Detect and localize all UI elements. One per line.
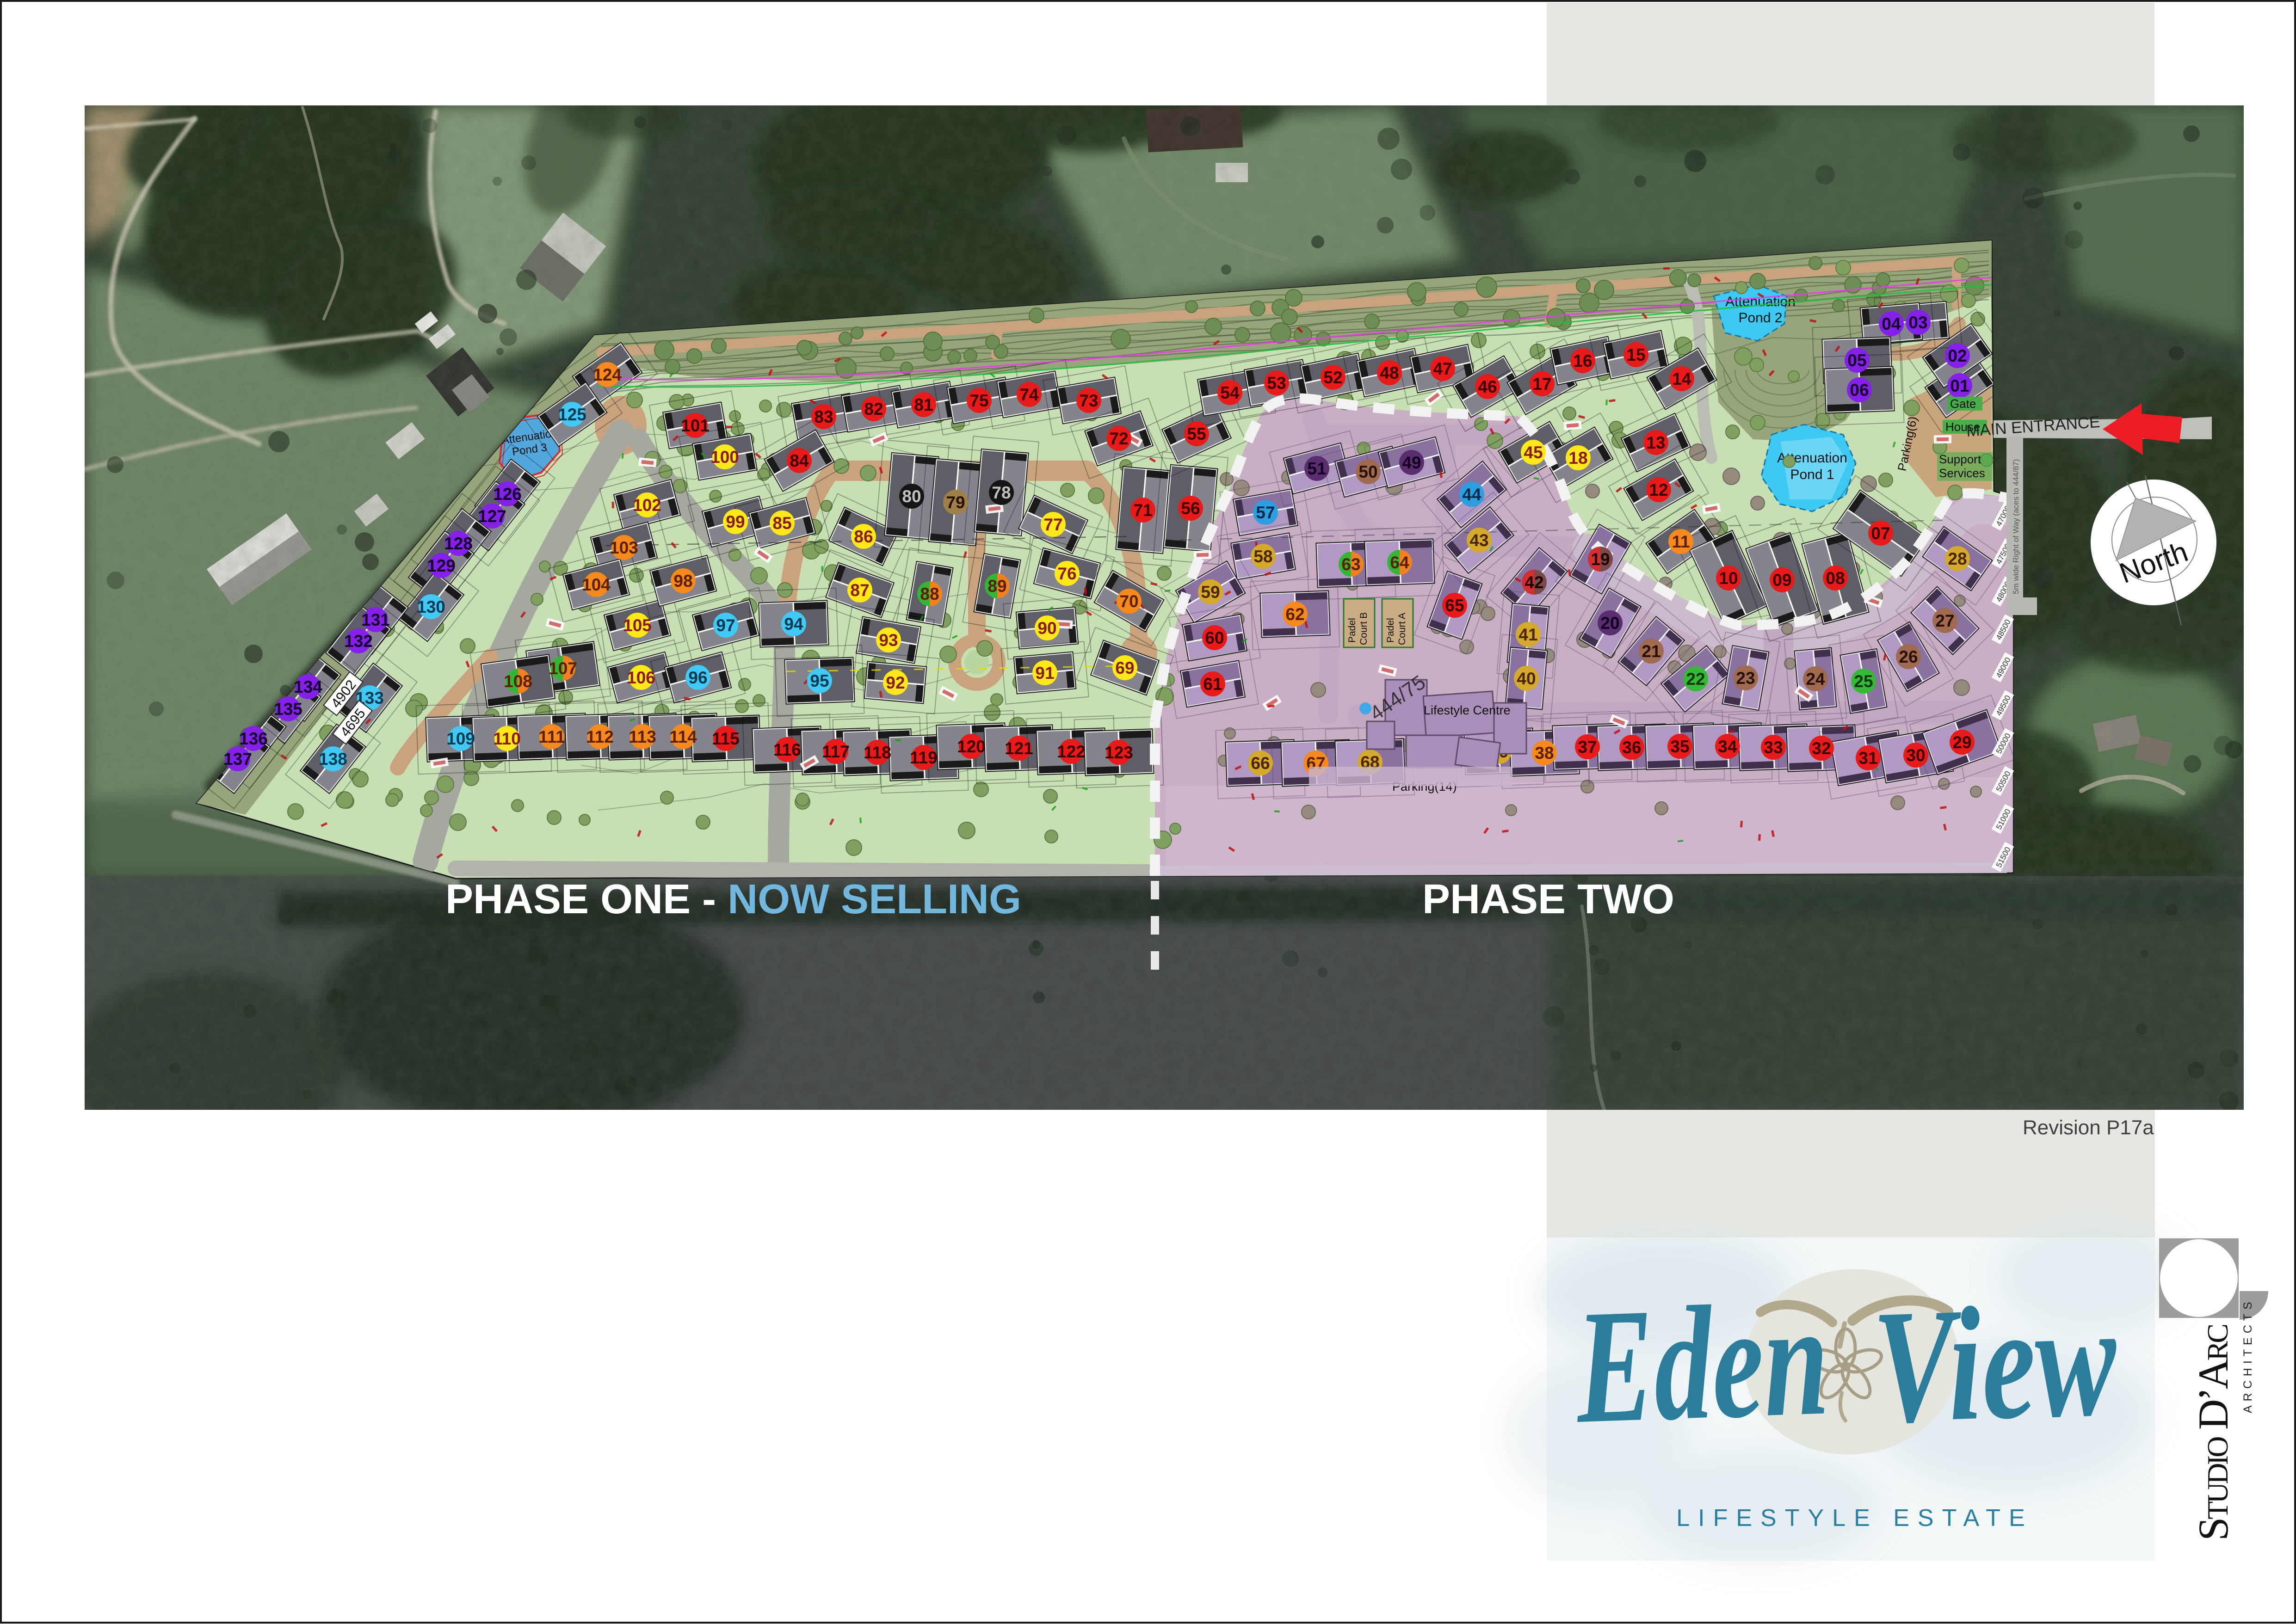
svg-text:11: 11 [1672, 532, 1690, 551]
svg-text:117: 117 [822, 742, 850, 761]
svg-text:61: 61 [1203, 675, 1222, 694]
svg-text:03: 03 [1908, 313, 1927, 332]
svg-text:84: 84 [790, 451, 809, 470]
svg-text:28: 28 [1948, 549, 1967, 568]
svg-text:77: 77 [1043, 515, 1062, 534]
svg-text:113: 113 [629, 727, 656, 746]
svg-text:69: 69 [1115, 658, 1134, 677]
svg-text:26: 26 [1899, 647, 1918, 666]
svg-text:75: 75 [969, 391, 988, 410]
svg-text:63: 63 [1341, 555, 1360, 574]
svg-text:LIFESTYLE ESTATE: LIFESTYLE ESTATE [1676, 1505, 2033, 1532]
svg-text:107: 107 [549, 659, 577, 678]
svg-text:130: 130 [417, 597, 445, 616]
svg-text:135: 135 [274, 700, 302, 719]
svg-text:47: 47 [1433, 359, 1452, 378]
svg-text:72: 72 [1109, 429, 1128, 448]
svg-text:24: 24 [1806, 670, 1825, 689]
svg-text:29: 29 [1952, 733, 1971, 752]
svg-text:73: 73 [1079, 391, 1098, 410]
svg-text:34: 34 [1718, 737, 1737, 756]
svg-text:99: 99 [726, 512, 745, 531]
svg-text:106: 106 [627, 668, 655, 687]
svg-text:48: 48 [1380, 363, 1399, 382]
svg-text:92: 92 [886, 673, 905, 692]
svg-text:49: 49 [1402, 453, 1421, 472]
svg-text:108: 108 [504, 672, 532, 691]
svg-text:90: 90 [1037, 619, 1056, 638]
svg-text:50: 50 [1358, 462, 1377, 481]
svg-text:80: 80 [902, 487, 921, 506]
svg-text:131: 131 [361, 610, 390, 629]
svg-text:46: 46 [1478, 377, 1497, 396]
svg-text:76: 76 [1057, 564, 1076, 583]
svg-text:114: 114 [669, 727, 697, 746]
svg-text:70: 70 [1119, 592, 1138, 611]
svg-text:62: 62 [1285, 605, 1304, 624]
svg-text:89: 89 [988, 577, 1006, 596]
svg-text:101: 101 [681, 416, 710, 435]
svg-text:12: 12 [1649, 480, 1668, 499]
svg-text:93: 93 [879, 631, 898, 650]
svg-text:134: 134 [294, 677, 322, 696]
svg-text:64: 64 [1390, 553, 1409, 572]
svg-text:91: 91 [1035, 664, 1054, 683]
svg-text:07: 07 [1871, 524, 1890, 543]
svg-text:Padel: Padel [1385, 618, 1396, 643]
svg-text:View: View [1870, 1269, 2120, 1458]
svg-text:18: 18 [1568, 449, 1587, 468]
svg-text:138: 138 [319, 750, 347, 769]
svg-text:Services: Services [1939, 466, 1985, 480]
svg-text:116: 116 [773, 740, 801, 759]
svg-text:43: 43 [1469, 531, 1488, 550]
svg-text:55: 55 [1187, 424, 1206, 443]
svg-text:105: 105 [623, 616, 652, 635]
svg-text:74: 74 [1019, 385, 1039, 404]
svg-text:110: 110 [493, 729, 521, 748]
svg-text:118: 118 [864, 743, 891, 762]
svg-text:121: 121 [1005, 739, 1033, 758]
svg-text:13: 13 [1646, 433, 1665, 452]
svg-text:100: 100 [710, 448, 739, 467]
svg-text:22: 22 [1686, 670, 1705, 689]
svg-text:PHASE ONE - NOW SELLING: PHASE ONE - NOW SELLING [445, 876, 1021, 923]
svg-text:81: 81 [914, 395, 933, 414]
svg-text:23: 23 [1736, 669, 1755, 688]
svg-text:Pond 1: Pond 1 [1790, 467, 1834, 482]
svg-text:Court B: Court B [1358, 612, 1369, 645]
svg-text:123: 123 [1105, 743, 1133, 762]
svg-text:129: 129 [427, 556, 456, 575]
svg-text:30: 30 [1906, 746, 1925, 765]
svg-text:40: 40 [1517, 669, 1536, 688]
svg-text:96: 96 [688, 668, 707, 687]
svg-text:111: 111 [538, 727, 565, 746]
svg-text:45: 45 [1524, 443, 1543, 462]
svg-text:53: 53 [1267, 374, 1286, 393]
svg-text:60: 60 [1205, 628, 1224, 647]
svg-text:85: 85 [772, 514, 791, 533]
svg-text:38: 38 [1535, 744, 1554, 763]
svg-text:44: 44 [1462, 485, 1481, 504]
svg-text:25: 25 [1854, 672, 1873, 691]
svg-text:57: 57 [1256, 503, 1275, 522]
svg-text:ARCHITECTS: ARCHITECTS [2241, 1298, 2254, 1413]
svg-text:20: 20 [1600, 614, 1619, 633]
svg-text:66: 66 [1251, 754, 1270, 773]
svg-text:136: 136 [239, 729, 268, 748]
svg-text:125: 125 [558, 405, 586, 424]
svg-text:126: 126 [493, 485, 522, 504]
svg-text:17: 17 [1532, 375, 1551, 394]
svg-text:51: 51 [1307, 459, 1326, 478]
svg-text:Court A: Court A [1397, 613, 1407, 645]
svg-text:Pond 2: Pond 2 [1738, 310, 1782, 326]
svg-text:71: 71 [1133, 501, 1152, 520]
svg-text:87: 87 [850, 581, 869, 600]
svg-text:10: 10 [1719, 569, 1738, 588]
svg-text:86: 86 [854, 527, 873, 546]
svg-text:37: 37 [1578, 738, 1597, 757]
svg-text:35: 35 [1670, 737, 1689, 756]
svg-text:Gate: Gate [1950, 397, 1976, 411]
svg-text:82: 82 [864, 400, 883, 418]
svg-text:132: 132 [344, 632, 373, 651]
svg-text:128: 128 [444, 534, 473, 553]
svg-text:112: 112 [586, 727, 614, 746]
svg-text:79: 79 [946, 493, 965, 512]
svg-text:33: 33 [1764, 738, 1783, 757]
svg-text:109: 109 [446, 729, 475, 748]
svg-text:09: 09 [1772, 571, 1791, 590]
svg-text:98: 98 [673, 572, 692, 591]
svg-text:05: 05 [1847, 351, 1866, 370]
svg-text:137: 137 [223, 750, 252, 769]
svg-text:102: 102 [633, 496, 661, 515]
svg-text:Eden: Eden [1571, 1268, 1831, 1458]
svg-text:97: 97 [716, 616, 735, 635]
svg-text:Revision P17a: Revision P17a [2023, 1116, 2154, 1139]
svg-text:14: 14 [1672, 369, 1691, 388]
svg-text:5m wide Right of Way (aces to: 5m wide Right of Way (aces to 444/87) [2012, 459, 2020, 594]
svg-text:58: 58 [1253, 547, 1272, 566]
svg-text:32: 32 [1812, 739, 1831, 758]
svg-text:21: 21 [1642, 642, 1660, 661]
svg-text:Support: Support [1939, 452, 1981, 466]
svg-text:01: 01 [1950, 376, 1969, 395]
svg-text:59: 59 [1201, 583, 1220, 602]
svg-text:52: 52 [1323, 368, 1342, 387]
svg-text:15: 15 [1626, 345, 1645, 364]
svg-text:83: 83 [814, 407, 833, 426]
svg-text:PHASE TWO: PHASE TWO [1422, 876, 1674, 923]
svg-text:120: 120 [957, 737, 986, 756]
svg-text:36: 36 [1622, 738, 1641, 757]
svg-text:42: 42 [1524, 573, 1543, 592]
svg-text:115: 115 [712, 729, 740, 748]
svg-text:Lifestyle Centre: Lifestyle Centre [1424, 703, 1511, 717]
svg-text:119: 119 [910, 748, 938, 767]
svg-text:103: 103 [610, 538, 638, 557]
svg-text:19: 19 [1591, 550, 1610, 569]
svg-text:06: 06 [1850, 381, 1869, 400]
svg-text:104: 104 [582, 575, 611, 594]
svg-text:56: 56 [1181, 499, 1200, 518]
svg-text:127: 127 [478, 507, 506, 526]
svg-text:88: 88 [920, 584, 939, 603]
svg-text:08: 08 [1826, 569, 1845, 588]
svg-text:31: 31 [1858, 749, 1877, 768]
svg-text:95: 95 [810, 671, 829, 690]
svg-text:04: 04 [1882, 314, 1901, 333]
svg-text:41: 41 [1518, 625, 1537, 644]
svg-text:Studio D’Arc: Studio D’Arc [2190, 1323, 2237, 1541]
svg-text:124: 124 [593, 365, 622, 384]
svg-text:16: 16 [1573, 351, 1592, 370]
svg-text:122: 122 [1057, 742, 1086, 761]
svg-text:02: 02 [1948, 346, 1967, 365]
svg-text:54: 54 [1220, 383, 1240, 402]
svg-text:Padel: Padel [1347, 618, 1358, 643]
svg-text:65: 65 [1445, 596, 1464, 615]
svg-text:27: 27 [1935, 611, 1954, 630]
svg-text:78: 78 [992, 483, 1011, 502]
svg-text:94: 94 [784, 615, 803, 634]
